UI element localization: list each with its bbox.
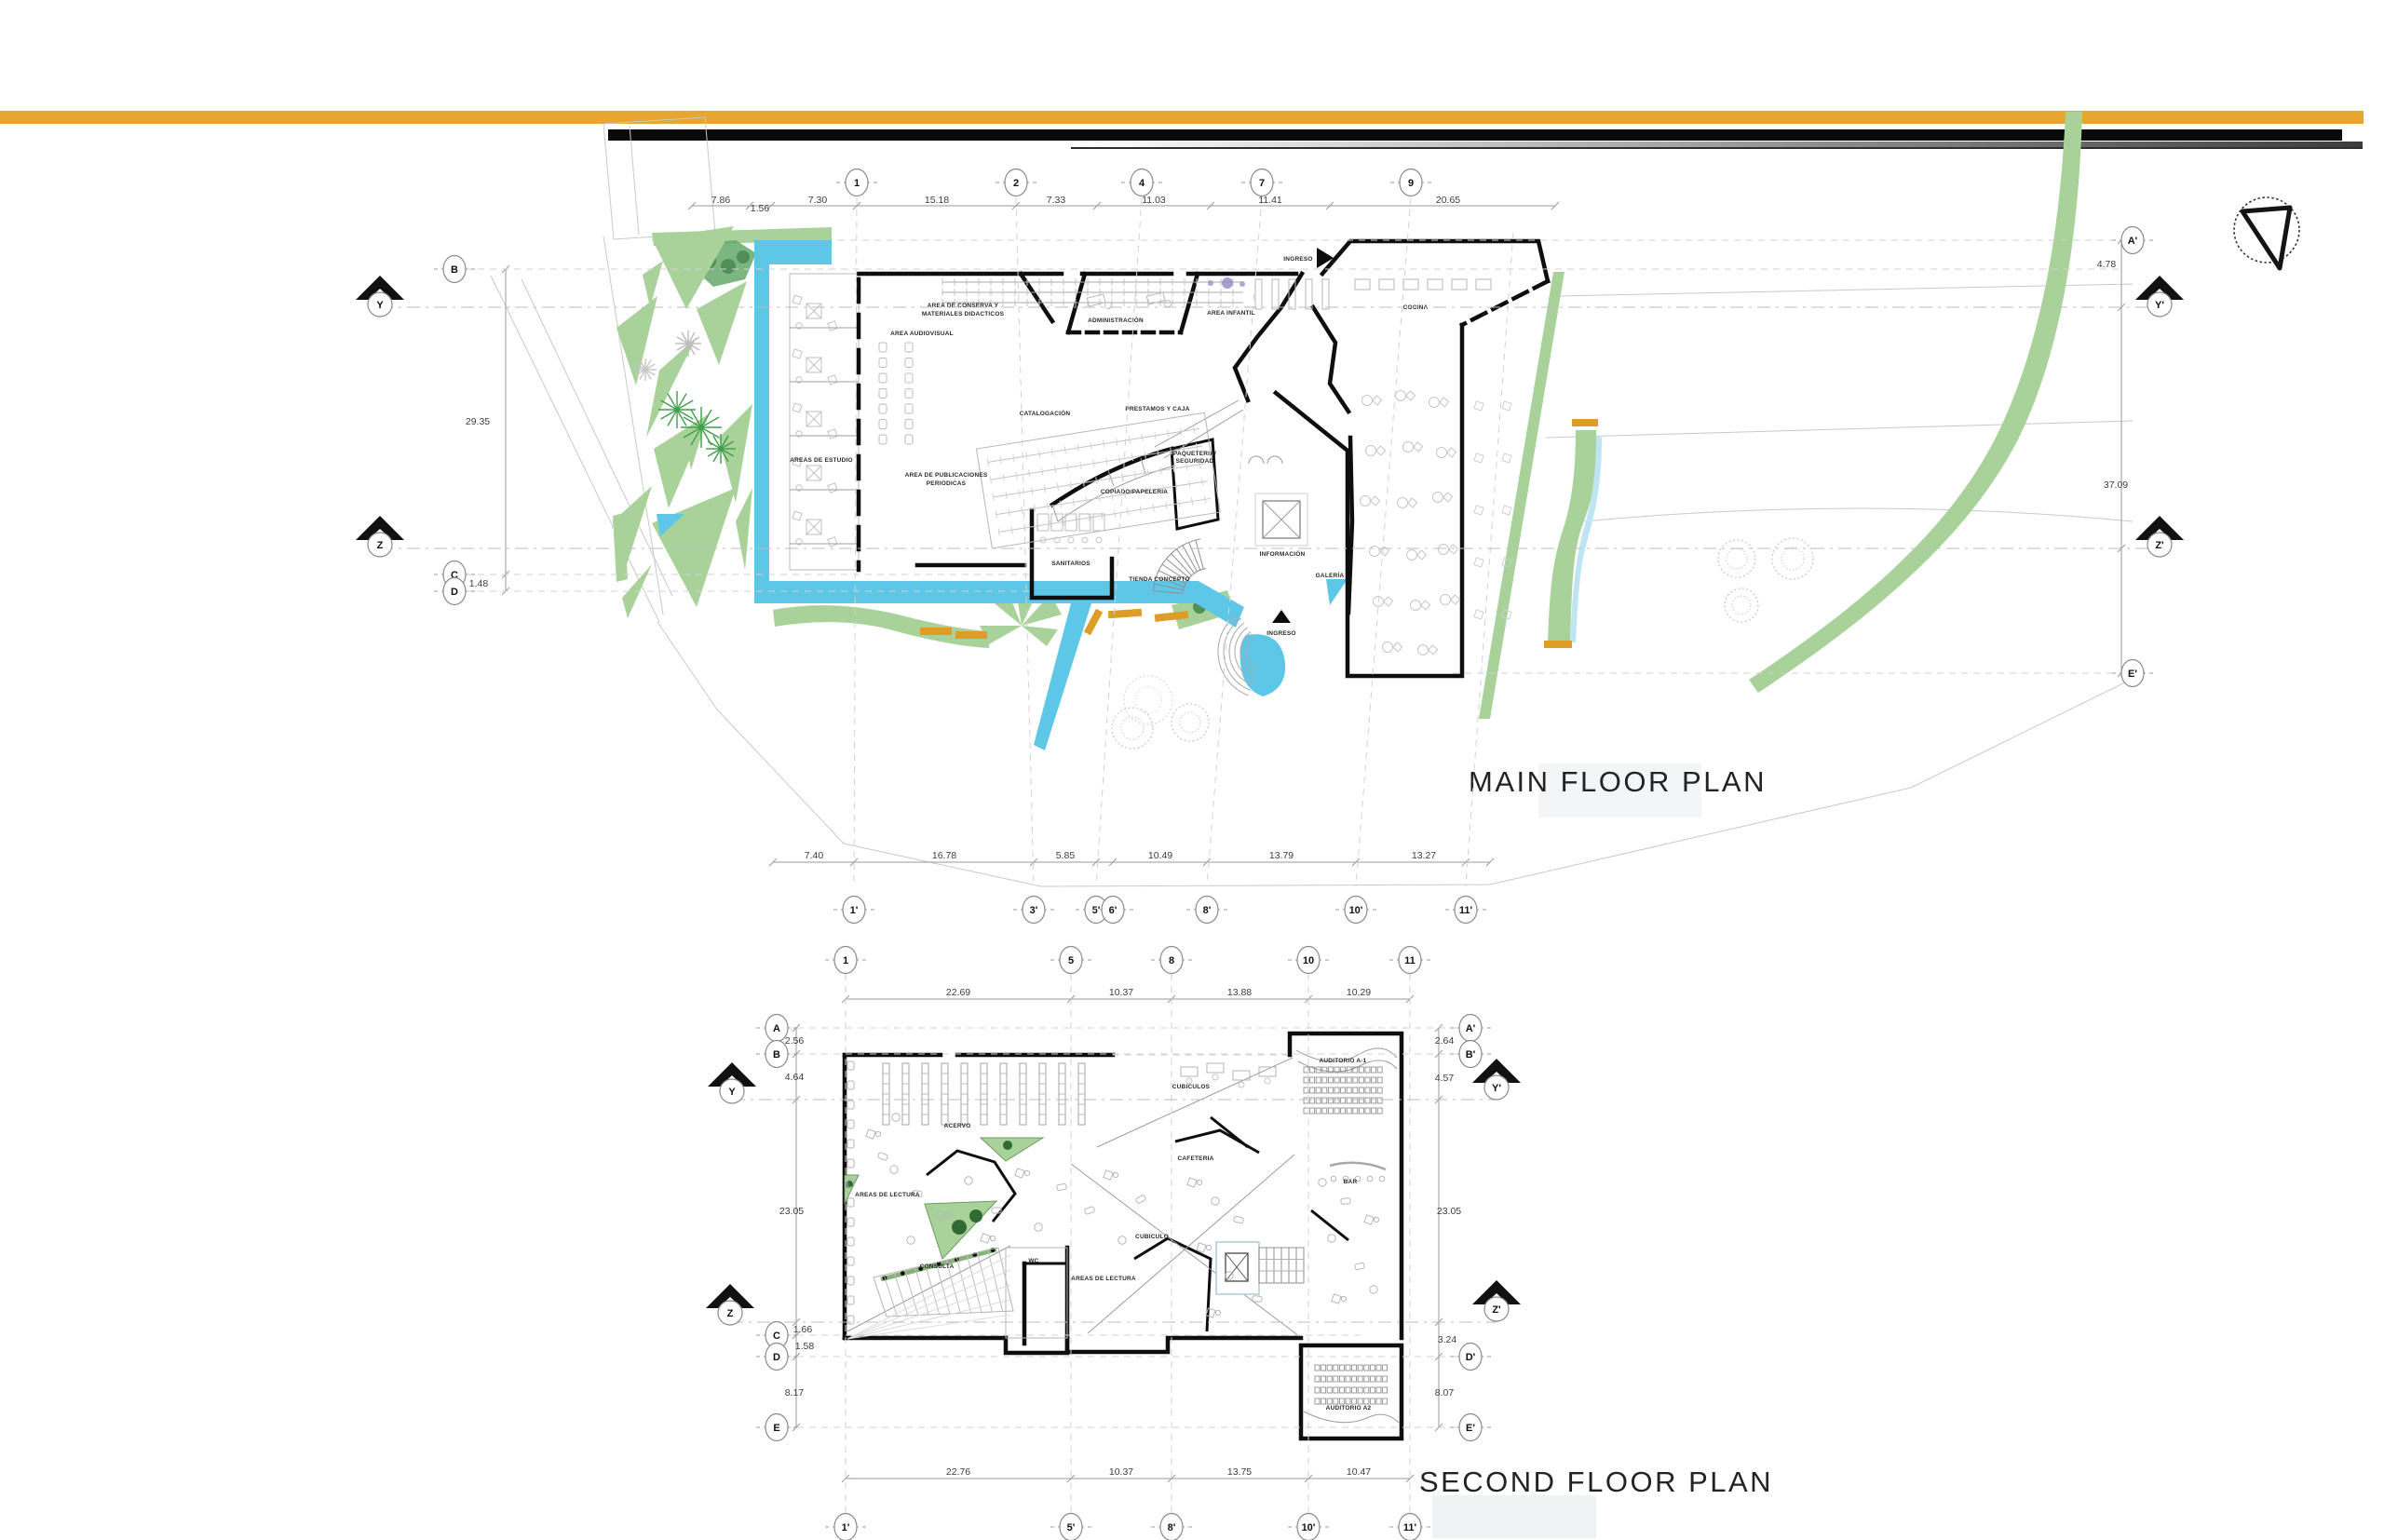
grid-bubble: 8' [1151, 1514, 1192, 1540]
grid-bubble: 3' [1013, 897, 1054, 924]
svg-text:8': 8' [1203, 905, 1212, 916]
room-label: AREA DE PUBLICACIONES [905, 472, 988, 479]
svg-text:6': 6' [1109, 905, 1117, 916]
svg-text:Y: Y [728, 1087, 736, 1098]
dimension-label: 5.85 [1056, 850, 1076, 861]
room-label: SANITARIOS [1051, 561, 1090, 567]
header-bars [0, 111, 2364, 149]
svg-text:Z': Z' [2155, 540, 2164, 551]
room-label: AREAS DE ESTUDIO [790, 457, 853, 464]
dimension-label: 7.86 [711, 195, 731, 206]
svg-text:Y': Y' [2155, 300, 2164, 311]
svg-text:B: B [451, 264, 458, 276]
dimension-label: 11.41 [1258, 195, 1282, 206]
dimension-label: 10.49 [1148, 850, 1172, 861]
title-highlight [1432, 1495, 1596, 1538]
main-plan-title-block: MAIN FLOOR PLAN [1469, 763, 1767, 817]
dimension-label: 4.78 [2097, 259, 2117, 270]
svg-text:5': 5' [1067, 1522, 1076, 1533]
room-label: CUBICULOS [1172, 1084, 1211, 1090]
svg-text:5': 5' [1092, 905, 1101, 916]
grid-bubble: 5 [1050, 947, 1091, 974]
room-label: CATALOGACIÓN [1020, 409, 1071, 417]
grid-bubble: 1 [836, 169, 877, 196]
svg-text:Z': Z' [1492, 1304, 1501, 1316]
room-label: AREA INFANTIL [1207, 310, 1255, 317]
dimension-label: 4.64 [785, 1072, 805, 1083]
dimension-label: 37.09 [2104, 480, 2128, 491]
elevator-core [1216, 1242, 1259, 1294]
room-label: TIENDA CONCEPTO [1129, 576, 1189, 583]
dimension-label: 22.69 [946, 987, 970, 998]
grid-bubble: 2 [996, 169, 1036, 196]
dimension-label: 1.48 [469, 578, 489, 589]
grid-bubble: 10 [1288, 947, 1329, 974]
dimension-label: 10.37 [1109, 1466, 1133, 1478]
grid-bubble: 1' [833, 897, 874, 924]
plan-title-main: MAIN FLOOR PLAN [1469, 765, 1767, 798]
grid-bubble: 8 [1151, 947, 1192, 974]
room-label: BAR [1344, 1179, 1358, 1185]
svg-text:A': A' [1466, 1023, 1476, 1034]
room-label: PRESTAMOS Y CAJA [1125, 406, 1189, 412]
dimension-label: 13.79 [1269, 850, 1294, 861]
grid-bubble: 1' [825, 1514, 866, 1540]
room-label: CONSULTA [920, 1263, 955, 1270]
section-marker: Y [356, 276, 404, 317]
room-label: CUBICULO [1135, 1234, 1169, 1240]
room-label: AREAS DE LECTURA [1071, 1276, 1136, 1282]
room-label: WC [1028, 1258, 1038, 1264]
header-gradient-bar [1071, 142, 2363, 147]
room-label: PAQUETERIA/ [1173, 451, 1216, 457]
dimension-label: 13.88 [1227, 987, 1252, 998]
grid-bubble: 9 [1390, 169, 1431, 196]
grid-bubble: 8' [1186, 897, 1227, 924]
room-label: PERIODICAS [927, 480, 967, 487]
svg-text:B: B [773, 1049, 780, 1060]
dimension-label: 13.27 [1412, 850, 1436, 861]
grid-bubble: E' [2112, 660, 2153, 687]
section-marker: Y' [1472, 1059, 1521, 1100]
dimension-label: 3.24 [1438, 1334, 1457, 1345]
svg-text:E: E [773, 1423, 779, 1434]
svg-text:D: D [451, 587, 458, 598]
dimension-label: 2.56 [785, 1035, 805, 1047]
room-label: AUDITORIO A2 [1326, 1405, 1372, 1412]
dimension-label: 7.40 [805, 850, 824, 861]
dimension-label: 29.35 [466, 416, 490, 427]
svg-text:11': 11' [1459, 905, 1473, 916]
room-label: COPIADO/PAPELERIA [1101, 489, 1168, 495]
room-label: AREA AUDIOVISUAL [890, 331, 954, 337]
main-floor-plan: AREA DE CONSERVA Y MATERIALES DIDACTICOS… [491, 112, 2138, 886]
svg-text:1: 1 [854, 178, 860, 189]
svg-text:2: 2 [1013, 178, 1019, 189]
svg-text:11': 11' [1403, 1522, 1417, 1533]
furniture-and-trees [634, 277, 1813, 749]
room-label: GALERÍA [1316, 571, 1345, 579]
top-accent-bar [0, 111, 2364, 124]
dimension-label: 4.57 [1435, 1073, 1455, 1084]
svg-text:11: 11 [1404, 955, 1415, 966]
water-wedge [1034, 603, 1091, 750]
entrance-label-top: INGRESO [1283, 256, 1312, 263]
room-labels-second: ACERVO AREAS DE LECTURA CONSULTA WC CUBI… [855, 1058, 1371, 1412]
dimension-label: 15.18 [925, 195, 949, 206]
section-marker: Y' [2135, 276, 2184, 317]
pond [1240, 634, 1286, 696]
grid-and-dimension-annotations: 124791'3'5'6'8'10'11'BCDA'E'15810111'5'8… [356, 169, 2184, 1540]
svg-text:10: 10 [1303, 955, 1314, 966]
room-label: ACERVO [944, 1123, 971, 1129]
room-label: AREAS DE LECTURA [855, 1192, 920, 1198]
svg-text:1: 1 [843, 955, 848, 966]
room-label: MATERIALES DIDACTICOS [922, 311, 1005, 317]
dimension-label: 2.64 [1435, 1035, 1455, 1047]
header-gradient-bar-edge [1071, 147, 2363, 149]
dimension-label: 20.65 [1436, 195, 1460, 206]
dimension-label: 10.37 [1109, 987, 1133, 998]
svg-text:A: A [773, 1023, 780, 1034]
room-label: ADMINISTRACIÓN [1088, 316, 1144, 324]
svg-text:3': 3' [1030, 905, 1038, 916]
section-marker: Z [706, 1284, 754, 1325]
svg-text:7: 7 [1259, 178, 1265, 189]
svg-text:C: C [773, 1331, 780, 1342]
grid-bubble: 11' [1389, 1514, 1430, 1540]
dimension-label: 7.33 [1047, 195, 1066, 206]
second-plan-title-block: SECOND FLOOR PLAN [1419, 1466, 1773, 1538]
grid-bubble: 4 [1121, 169, 1162, 196]
dimension-label: 23.05 [1437, 1206, 1461, 1217]
section-marker: Z' [2135, 516, 2184, 557]
stairs [1259, 1248, 1304, 1283]
section-marker: Z [356, 516, 404, 557]
dimension-label: 22.76 [946, 1466, 970, 1478]
grid-bubble: 5' [1050, 1514, 1091, 1540]
svg-text:4: 4 [1139, 178, 1145, 189]
dimension-label: 13.75 [1227, 1466, 1252, 1478]
room-label: SEGURIDAD [1176, 458, 1214, 465]
dimension-label: 23.05 [779, 1206, 804, 1217]
room-label: AUDITORIO A-1 [1320, 1058, 1367, 1064]
svg-text:E': E' [2128, 669, 2137, 680]
svg-text:D': D' [1466, 1352, 1476, 1363]
section-marker: Y [708, 1062, 756, 1103]
svg-text:10': 10' [1302, 1522, 1316, 1533]
north-arrow-icon [2234, 197, 2299, 268]
svg-text:Z: Z [377, 540, 384, 551]
svg-text:9: 9 [1408, 178, 1414, 189]
second-floor-plan: ACERVO AREAS DE LECTURA CONSULTA WC CUBI… [845, 1033, 1773, 1538]
pond-small [1326, 579, 1348, 605]
grid-bubble: A' [2112, 227, 2153, 254]
dimension-label: 16.78 [932, 850, 956, 861]
svg-text:1': 1' [842, 1522, 850, 1533]
svg-text:Y': Y' [1492, 1083, 1501, 1094]
dimension-label: 10.47 [1347, 1466, 1371, 1478]
room-label: CAFETERIA [1178, 1155, 1214, 1162]
header-black-bar [608, 129, 2342, 141]
plan-sheet-canvas: AREA DE CONSERVA Y MATERIALES DIDACTICOS… [0, 0, 2384, 1540]
svg-text:5: 5 [1068, 955, 1074, 966]
room-label: INFORMACIÓN [1260, 549, 1306, 558]
svg-text:E': E' [1466, 1423, 1475, 1434]
svg-text:Y: Y [376, 300, 384, 311]
grid-bubble: 7 [1241, 169, 1282, 196]
entrance-label-bottom: INGRESO [1266, 630, 1295, 637]
grid-bubble: 1 [825, 947, 866, 974]
svg-text:8: 8 [1169, 955, 1174, 966]
dimension-label: 8.07 [1435, 1387, 1455, 1398]
svg-text:A': A' [2128, 236, 2138, 247]
svg-text:D: D [773, 1352, 780, 1363]
dimension-label: 1.66 [793, 1324, 813, 1335]
grid-bubble: 10' [1335, 897, 1376, 924]
svg-text:10': 10' [1349, 905, 1363, 916]
grid-bubble: 11 [1389, 947, 1430, 974]
drawing-sheet: { "sheet": { "accent_bar_color": "#E7A62… [0, 0, 2384, 1540]
room-label: AREA DE CONSERVA Y [928, 303, 999, 309]
plan-title-second: SECOND FLOOR PLAN [1419, 1466, 1773, 1498]
dimension-label: 1.58 [795, 1341, 815, 1352]
grid-bubble: 11' [1445, 897, 1486, 924]
svg-text:Z: Z [727, 1308, 734, 1319]
green-area-second [845, 1138, 1043, 1259]
information-kiosk [1249, 456, 1307, 546]
svg-text:8': 8' [1168, 1522, 1176, 1533]
svg-text:1': 1' [850, 905, 859, 916]
dimension-label: 1.56 [751, 203, 770, 214]
svg-text:B': B' [1466, 1049, 1476, 1060]
grid-bubble: 10' [1288, 1514, 1329, 1540]
dimension-label: 8.17 [785, 1387, 805, 1398]
dimension-label: 10.29 [1347, 987, 1371, 998]
dimension-label: 11.03 [1142, 195, 1166, 206]
section-marker: Z' [1472, 1280, 1521, 1321]
dimension-label: 7.30 [808, 195, 828, 206]
